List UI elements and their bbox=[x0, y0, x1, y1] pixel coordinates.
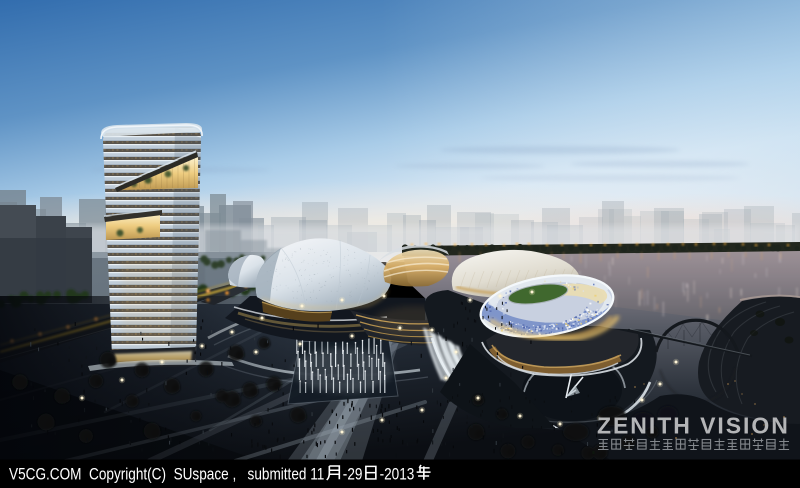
svg-text:V5CG.COM Copyright(C) SUspac: V5CG.COM Copyright(C) SUspace , submitte… bbox=[9, 465, 324, 484]
svg-text:-2013: -2013 bbox=[380, 465, 415, 484]
svg-text:ZENITH VISION: ZENITH VISION bbox=[597, 413, 790, 439]
svg-text:-29: -29 bbox=[343, 465, 363, 484]
